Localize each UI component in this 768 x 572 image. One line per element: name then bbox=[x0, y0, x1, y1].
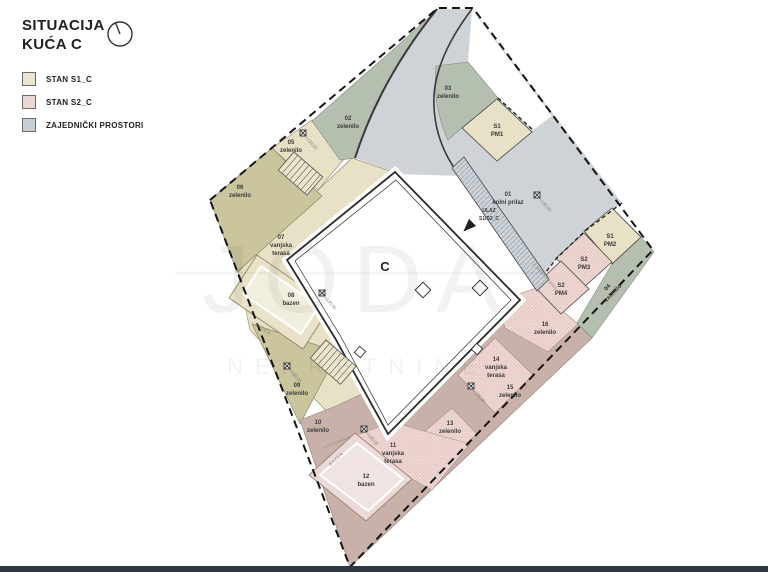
zone-label: 13 bbox=[447, 421, 454, 427]
parking-label: S1 bbox=[606, 234, 614, 240]
legend-swatch-s2 bbox=[22, 95, 36, 109]
zone-label: 02 bbox=[345, 116, 352, 122]
legend: STAN S1_C STAN S2_C ZAJEDNIČKI PROSTORI bbox=[22, 72, 144, 141]
zone-label: zelenilo bbox=[286, 391, 308, 397]
parking-label: PM2 bbox=[604, 242, 617, 248]
zone-label: zelenilo bbox=[337, 124, 359, 130]
zone-label: terasa bbox=[487, 373, 505, 379]
north-arrow-icon bbox=[105, 18, 135, 53]
zone-label: 09 bbox=[294, 383, 301, 389]
zone-label: 05 bbox=[288, 140, 295, 146]
zone-label: zelenilo bbox=[534, 330, 556, 336]
zone-label: 12 bbox=[363, 474, 370, 480]
bottom-bar bbox=[0, 566, 768, 572]
title-line2: KUĆA C bbox=[22, 35, 105, 54]
zone-label: zelenilo bbox=[307, 428, 329, 434]
parking-label: S1 bbox=[493, 124, 501, 130]
zone-label: terasa bbox=[384, 459, 402, 465]
title-line1: SITUACIJA bbox=[22, 16, 105, 35]
legend-swatch-s1 bbox=[22, 72, 36, 86]
svg-text:NEKRETNINE: NEKRETNINE bbox=[227, 354, 489, 379]
zone-label: 01 bbox=[505, 192, 512, 198]
parking-label: PM3 bbox=[578, 265, 591, 271]
zone-label: 10 bbox=[315, 420, 322, 426]
legend-label: STAN S1_C bbox=[46, 75, 92, 84]
zone-label: zelenilo bbox=[439, 429, 461, 435]
legend-label: STAN S2_C bbox=[46, 98, 92, 107]
parking-label: PM4 bbox=[555, 291, 568, 297]
zone-label: zelenilo bbox=[229, 193, 251, 199]
entrance-label: S1/S2_C bbox=[479, 216, 499, 222]
legend-item-zajednicki: ZAJEDNIČKI PROSTORI bbox=[22, 118, 144, 132]
zone-label: 15 bbox=[507, 385, 514, 391]
legend-label: ZAJEDNIČKI PROSTORI bbox=[46, 121, 144, 130]
zone-label: 14 bbox=[493, 357, 500, 363]
zone-label: 06 bbox=[237, 185, 244, 191]
parking-label: PM1 bbox=[491, 132, 504, 138]
legend-item-s2: STAN S2_C bbox=[22, 95, 144, 109]
zone-label: vanjska bbox=[382, 451, 405, 457]
svg-text:JODA: JODA bbox=[202, 226, 514, 333]
page-title: SITUACIJA KUĆA C bbox=[22, 16, 105, 54]
zone-label: zelenilo bbox=[499, 393, 521, 399]
zone-label: kolni prilaz bbox=[492, 200, 523, 206]
zone-label: zelenilo bbox=[437, 94, 459, 100]
parking-label: S2 bbox=[580, 257, 588, 263]
zone-label: 16 bbox=[542, 322, 549, 328]
zone-label: zelenilo bbox=[280, 148, 302, 154]
entrance-label: ULAZ bbox=[482, 208, 495, 214]
zone-label: bazen bbox=[357, 482, 374, 488]
site-plan-page: +135,00 +135,00 +135,00 +135,00 +135,00 … bbox=[0, 0, 768, 572]
zone-label: 03 bbox=[445, 86, 452, 92]
legend-swatch-zajednicki bbox=[22, 118, 36, 132]
legend-item-s1: STAN S1_C bbox=[22, 72, 144, 86]
zone-label: 11 bbox=[390, 443, 397, 449]
